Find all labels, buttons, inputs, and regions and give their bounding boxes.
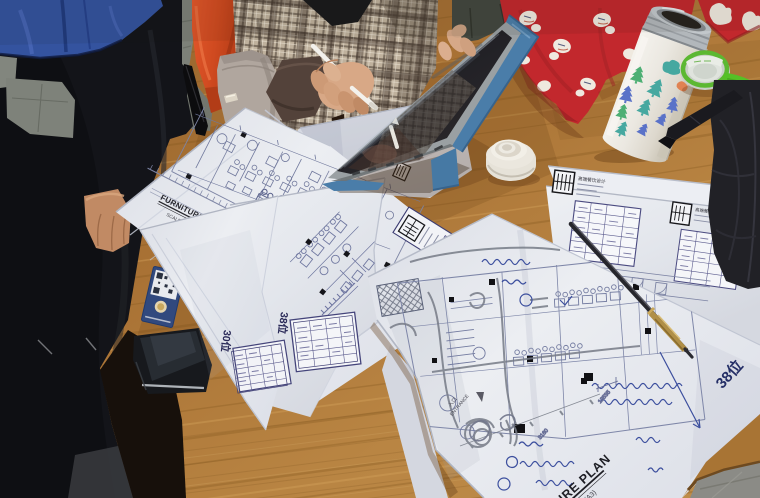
svg-text:38位: 38位 (275, 311, 291, 335)
svg-text:30位: 30位 (218, 329, 234, 353)
